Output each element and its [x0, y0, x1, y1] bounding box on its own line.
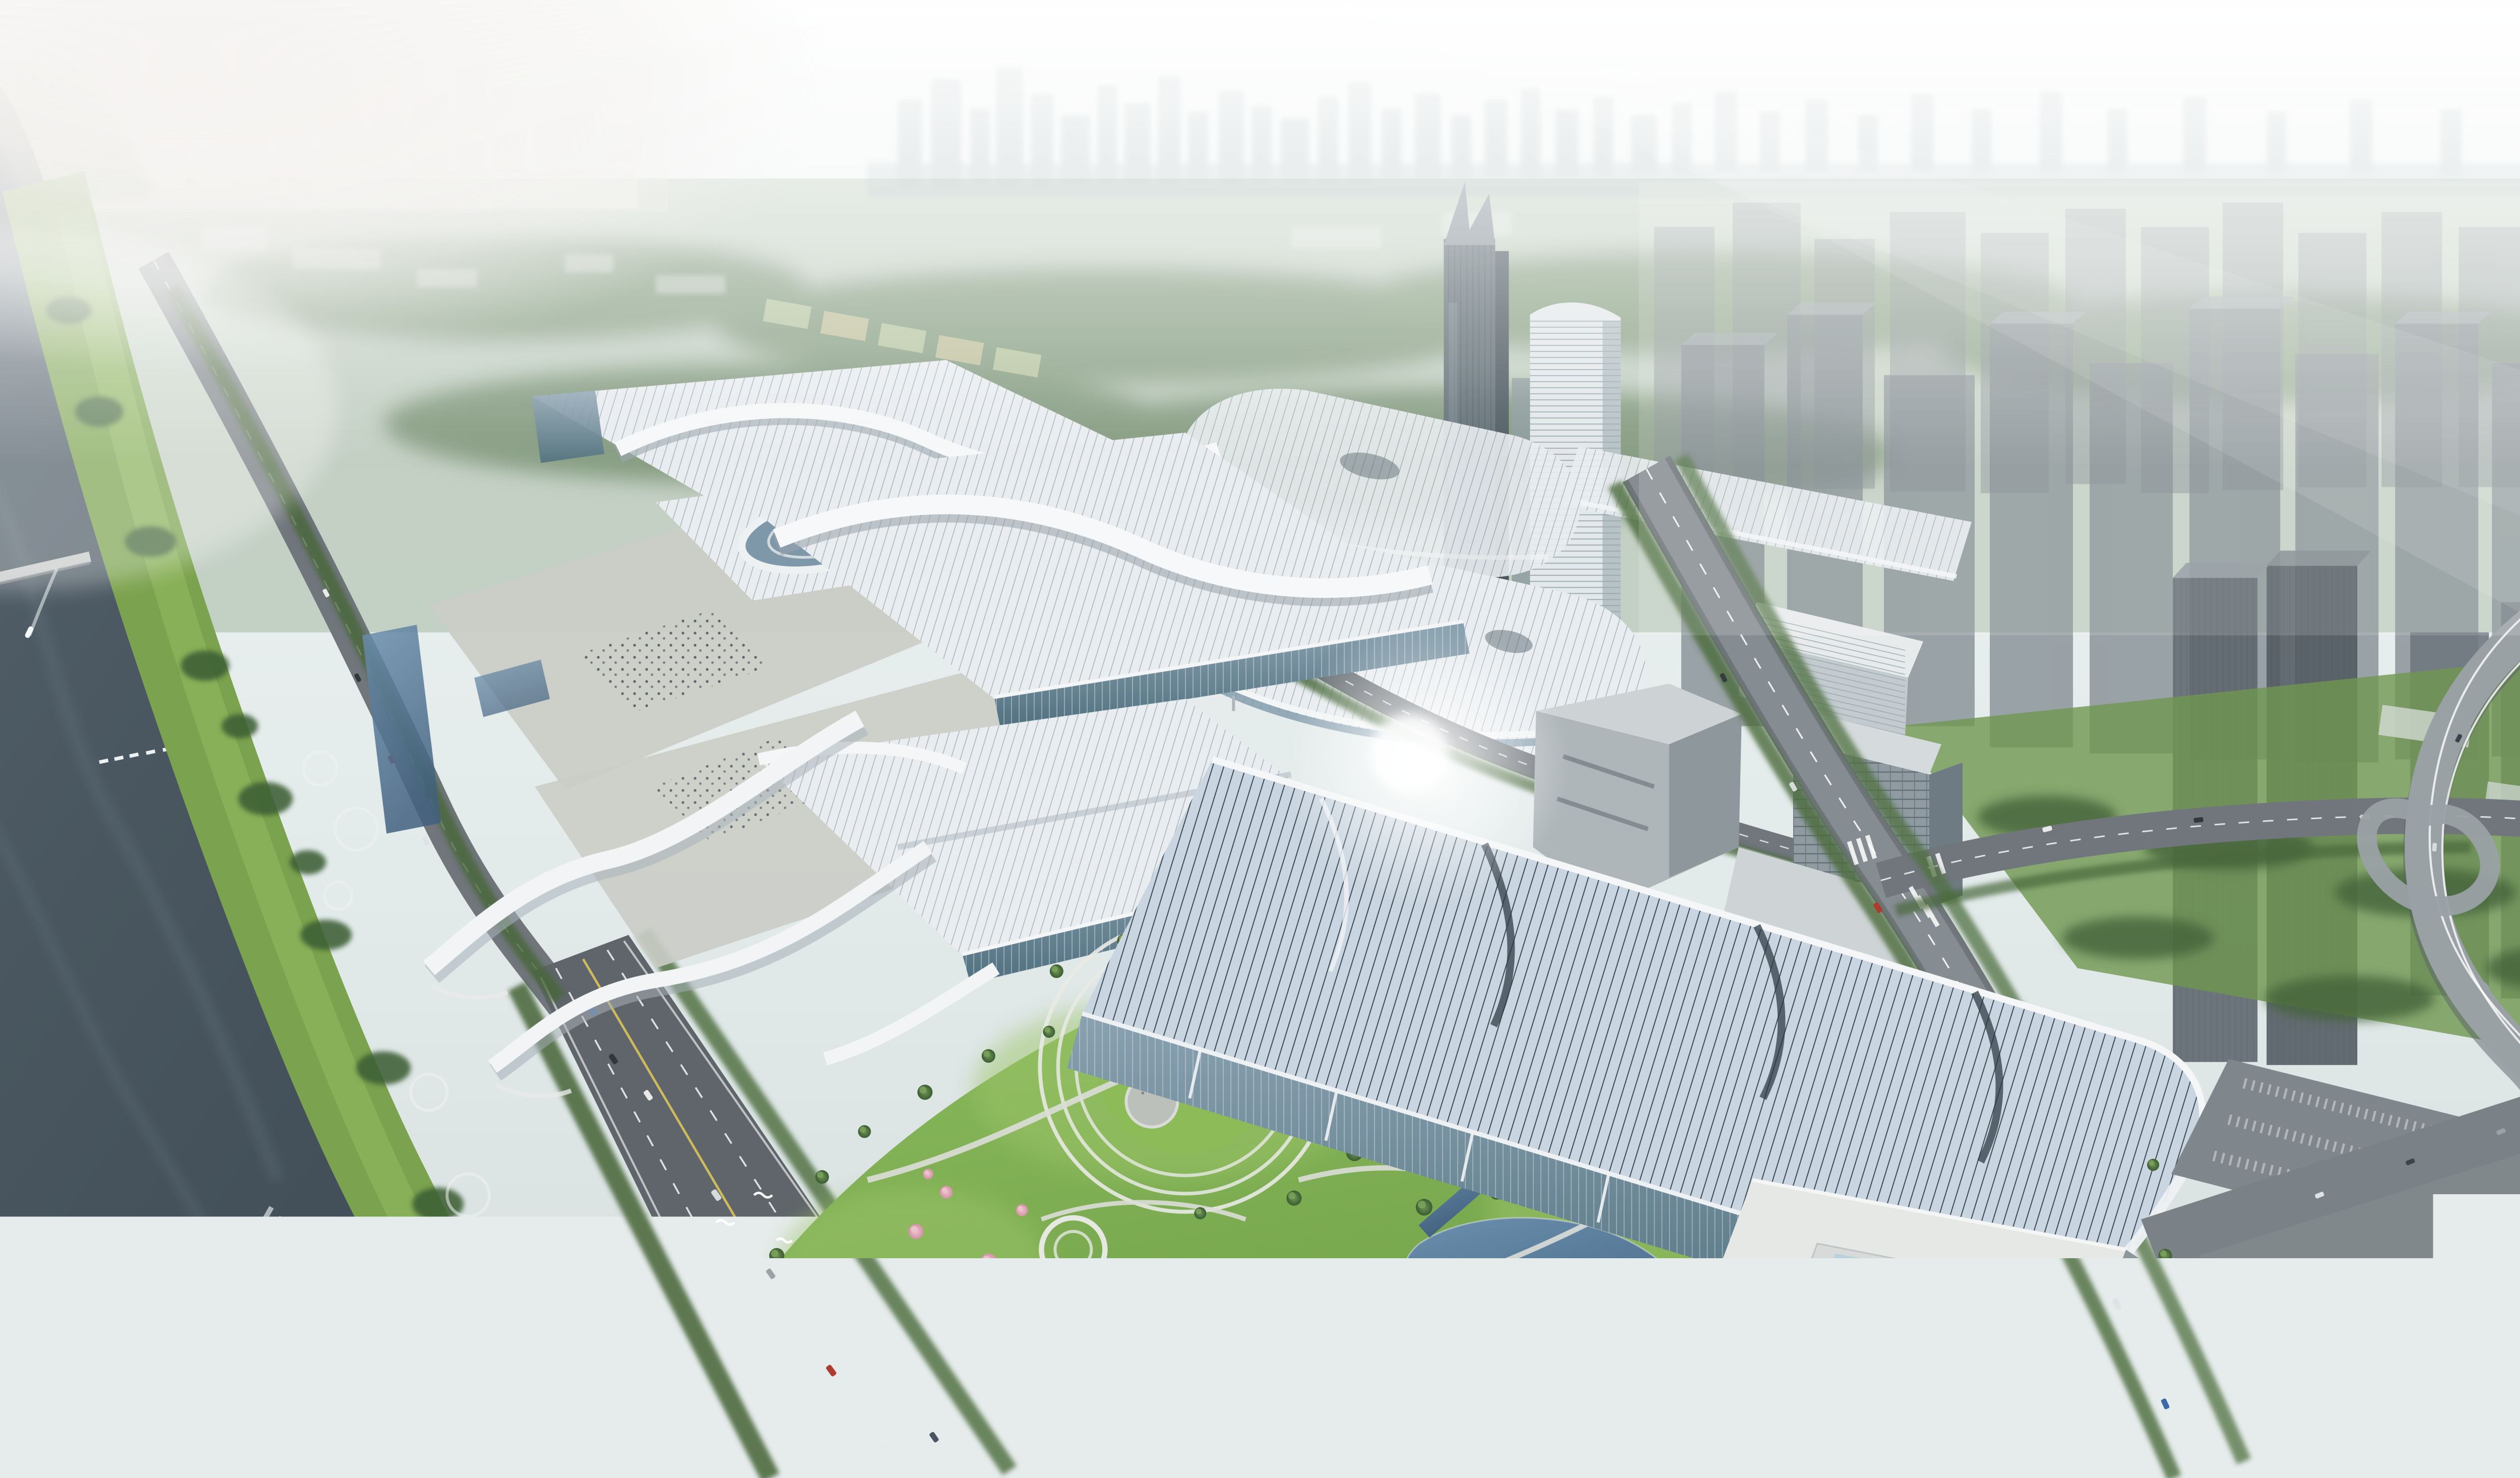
pond-island [1541, 1292, 1601, 1316]
aerial-rendering: Aerial rendering of a riverside exhibiti… [0, 0, 2520, 1478]
city-veil [1639, 181, 2520, 635]
sun-glare-core [1370, 714, 1448, 792]
rendering-canvas: Aerial rendering of a riverside exhibiti… [0, 0, 2520, 1478]
